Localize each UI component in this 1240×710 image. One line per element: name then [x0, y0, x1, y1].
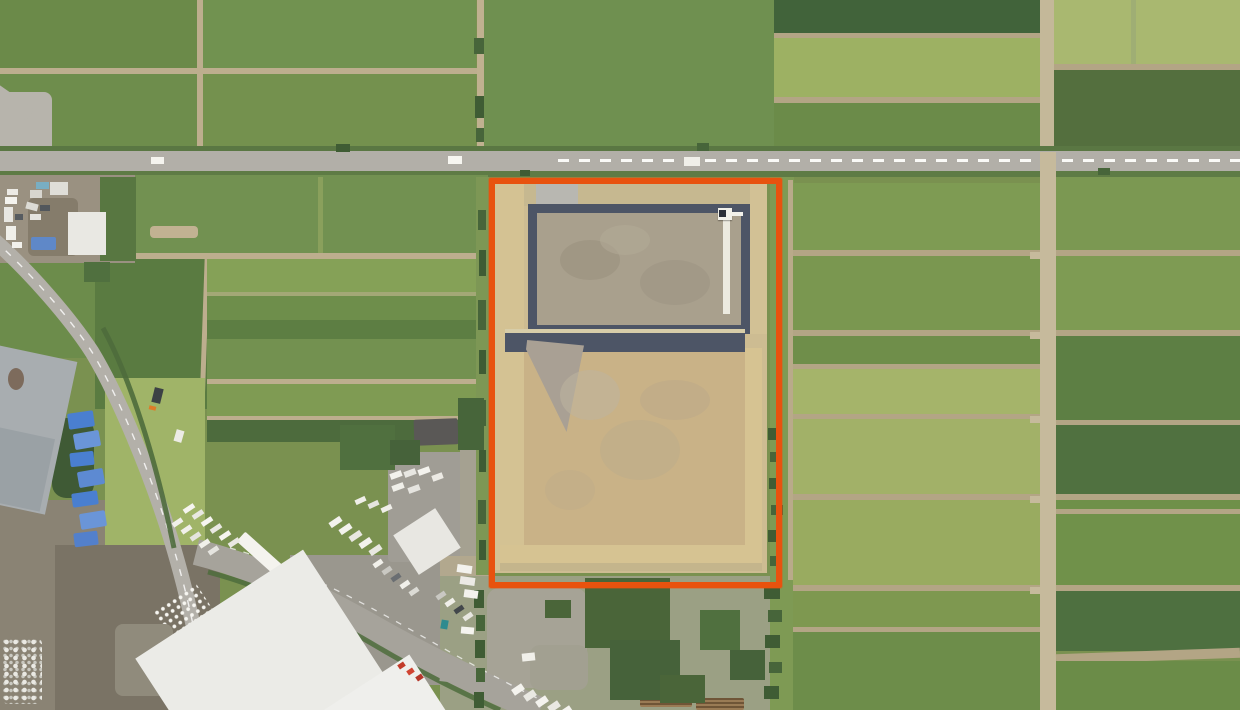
farm-shed: [30, 190, 42, 198]
tree: [768, 610, 782, 622]
tree: [336, 144, 350, 152]
car: [30, 214, 41, 220]
blue-tarps: [73, 531, 99, 548]
tree: [478, 300, 486, 330]
tree: [479, 540, 486, 560]
site-marker[interactable]: [718, 208, 732, 220]
farm-pool: [36, 182, 49, 189]
tree: [474, 38, 484, 54]
aerial-map-view: [0, 0, 1240, 710]
shrub: [545, 600, 571, 618]
tree: [84, 262, 110, 282]
tree: [476, 615, 485, 631]
pickup: [461, 626, 475, 634]
shrub-mass: [730, 650, 765, 680]
truck: [684, 157, 700, 166]
tree: [479, 350, 486, 374]
car: [5, 197, 17, 204]
farm-shed: [50, 182, 68, 195]
tree: [520, 170, 530, 176]
blue-tarps: [31, 237, 56, 250]
tree: [476, 668, 485, 682]
car: [15, 214, 23, 220]
tree: [697, 143, 709, 151]
tree: [764, 686, 779, 699]
tree: [474, 692, 484, 708]
tree: [479, 250, 486, 276]
truck: [4, 207, 13, 222]
tree-mass: [340, 425, 395, 470]
tree: [479, 450, 486, 472]
tree: [476, 128, 484, 142]
car: [151, 157, 164, 164]
site-marker-square: [719, 210, 726, 217]
car: [7, 189, 18, 195]
house-roof: [414, 418, 459, 446]
tree: [1098, 168, 1110, 175]
shrub-mass: [700, 610, 740, 650]
blue-tarps: [69, 451, 94, 467]
tree-mass: [390, 440, 420, 465]
shrub-mass: [660, 675, 705, 703]
tree: [475, 640, 485, 658]
tree: [769, 662, 782, 673]
car: [12, 242, 22, 248]
shrub-mass: [585, 578, 670, 648]
truck: [6, 226, 16, 240]
farm-building: [68, 212, 106, 255]
tree: [765, 635, 780, 648]
parcel-outline[interactable]: [489, 178, 782, 588]
tree: [478, 500, 486, 524]
tree: [475, 96, 484, 118]
tree: [478, 210, 486, 230]
car: [448, 156, 462, 164]
tree-mass: [458, 398, 484, 450]
roof-stain: [8, 368, 24, 390]
car: [40, 205, 50, 211]
site-marker-arm: [732, 212, 743, 216]
van: [522, 652, 536, 661]
junk-pile: [2, 638, 42, 704]
